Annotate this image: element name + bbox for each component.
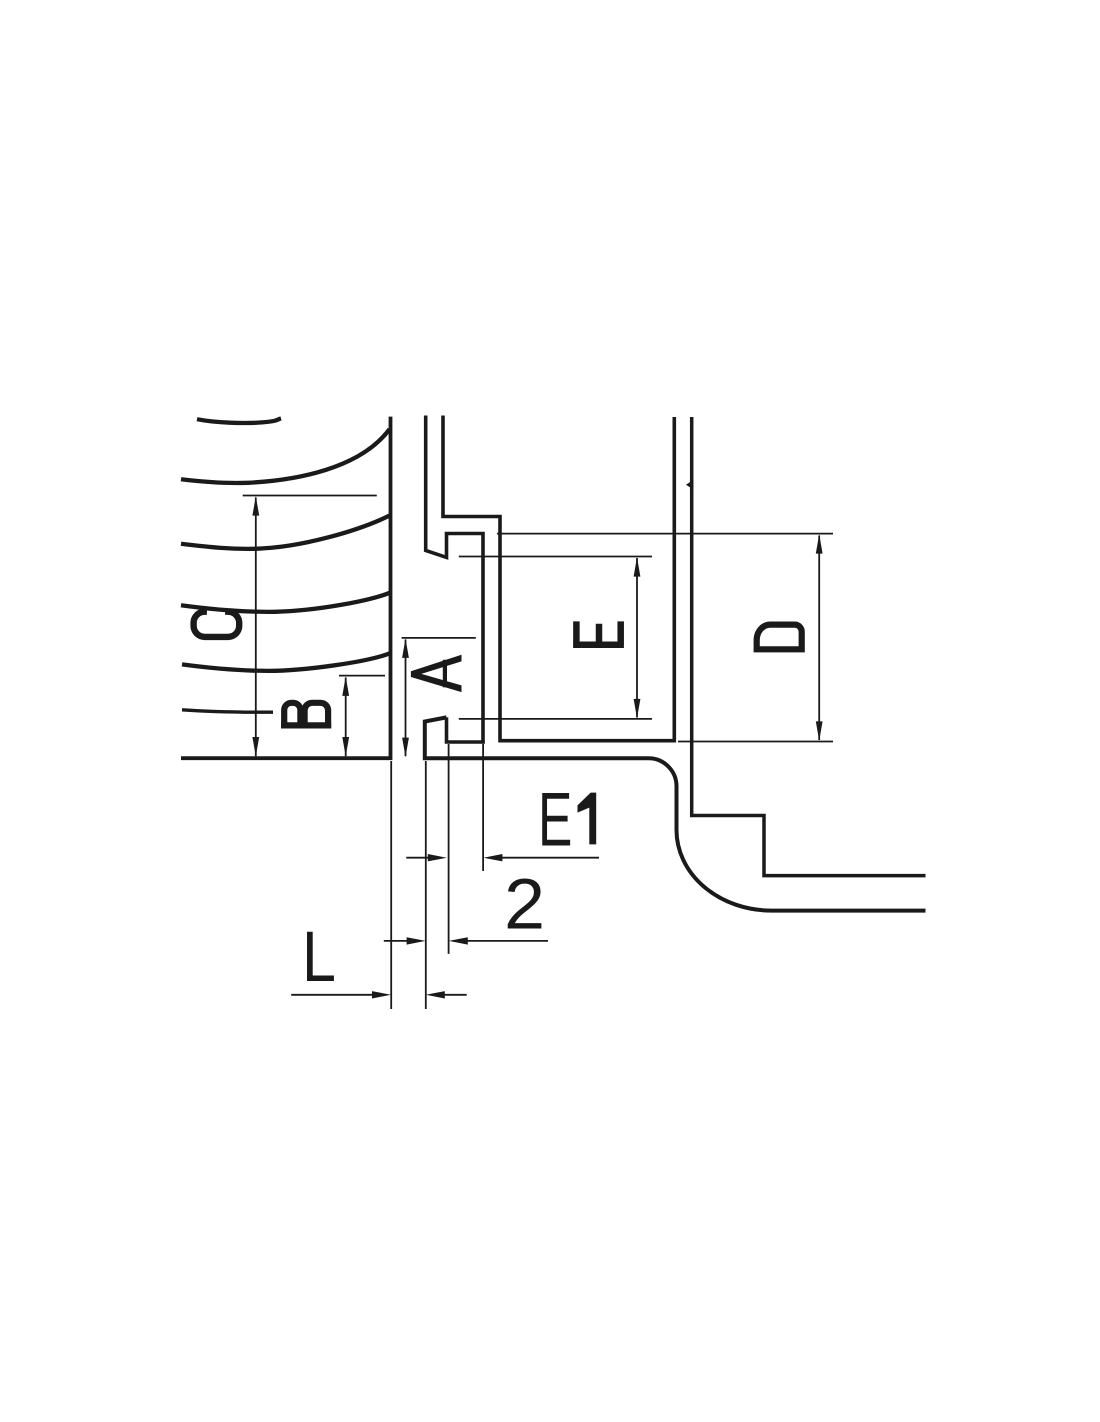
svg-text:2: 2: [504, 864, 545, 944]
svg-text:E: E: [538, 776, 572, 861]
svg-text:L: L: [302, 918, 336, 997]
